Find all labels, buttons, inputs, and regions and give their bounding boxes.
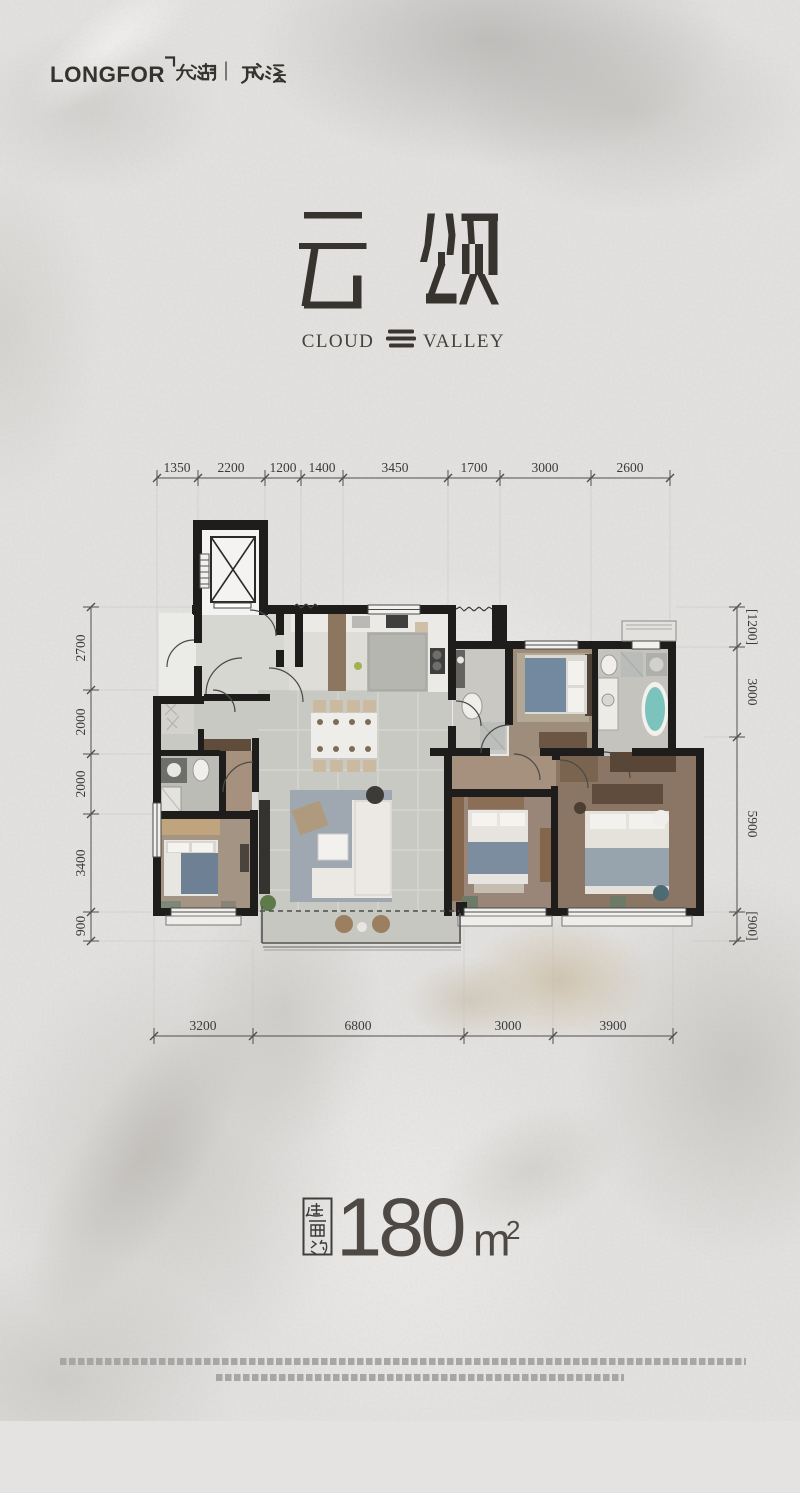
svg-text:2000: 2000 (73, 708, 88, 735)
svg-text:3000: 3000 (745, 679, 760, 706)
svg-text:900: 900 (73, 916, 88, 937)
svg-text:2000: 2000 (73, 770, 88, 797)
svg-text:3000: 3000 (495, 1018, 522, 1033)
svg-text:3400: 3400 (73, 849, 88, 876)
svg-text:[900]: [900] (745, 911, 760, 940)
svg-text:2600: 2600 (617, 460, 644, 475)
svg-text:2700: 2700 (73, 634, 88, 661)
svg-text:3900: 3900 (600, 1018, 627, 1033)
svg-text:5900: 5900 (745, 811, 760, 838)
svg-text:180: 180 (336, 1181, 463, 1274)
svg-text:2200: 2200 (218, 460, 245, 475)
svg-text:2: 2 (506, 1215, 520, 1245)
svg-text:3000: 3000 (532, 460, 559, 475)
svg-text:m: m (473, 1215, 511, 1266)
svg-text:1200: 1200 (270, 460, 297, 475)
svg-text:3450: 3450 (382, 460, 409, 475)
svg-text:3200: 3200 (190, 1018, 217, 1033)
svg-text:[1200]: [1200] (745, 609, 760, 645)
svg-text:6800: 6800 (345, 1018, 372, 1033)
svg-text:1400: 1400 (309, 460, 336, 475)
svg-text:1350: 1350 (164, 460, 191, 475)
svg-text:1700: 1700 (461, 460, 488, 475)
